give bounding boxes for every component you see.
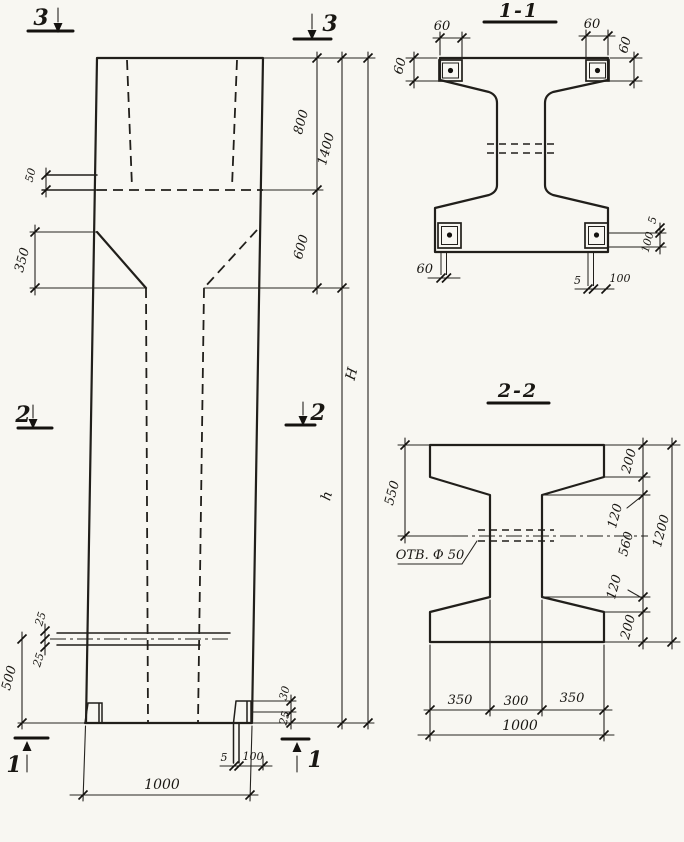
section-marker-label: 2 bbox=[309, 400, 325, 426]
dim-plate-right-thickness: 5 bbox=[645, 215, 659, 225]
extension-lines bbox=[18, 58, 375, 801]
dim-base-width: 1000 bbox=[144, 777, 180, 793]
embedded-plate-top-left bbox=[439, 60, 462, 81]
dim-plate-tl-height: 60 bbox=[391, 56, 410, 76]
section-marker-label: 1 bbox=[6, 752, 21, 778]
section-marker-3-left: 3 bbox=[28, 5, 73, 33]
dim-plate-tr-height: 60 bbox=[616, 35, 635, 55]
hidden-cap-left bbox=[127, 60, 132, 187]
hole-note: ОТВ. Ф 50 bbox=[396, 548, 465, 563]
anchor-tab bbox=[234, 723, 240, 763]
dim-haunch-top: 120 bbox=[605, 502, 626, 530]
dim-cap-lower: 600 bbox=[291, 233, 312, 261]
section-2-2-outline bbox=[430, 445, 604, 642]
dim-taper: 350 bbox=[12, 246, 33, 274]
section-2-2-extensions bbox=[398, 445, 680, 741]
hidden-web-right bbox=[198, 288, 204, 722]
dimension-ticks bbox=[18, 54, 373, 800]
dim-cap-total: 1400 bbox=[315, 131, 338, 167]
section-marker-3-right: 3 bbox=[294, 11, 338, 40]
dim-total-height: H bbox=[343, 365, 362, 383]
section-marker-1-right: 1 bbox=[282, 739, 323, 773]
section-1-1-title: 1-1 bbox=[499, 0, 539, 22]
section-1-1-dim-lines bbox=[406, 30, 666, 289]
dim-ledge: 50 bbox=[23, 167, 39, 184]
dim-total-height-22: 1200 bbox=[650, 513, 673, 549]
dim-shaft-height: h bbox=[318, 490, 336, 503]
section-2-2-view: 2-2 ОТВ. Ф 50 550 200 120 560 120 200 12… bbox=[382, 380, 680, 741]
section-marker-label: 3 bbox=[33, 5, 48, 31]
section-2-2-title: 2-2 bbox=[497, 380, 538, 402]
section-marker-label: 2 bbox=[14, 402, 30, 428]
dim-plate-right-length: 100 bbox=[639, 230, 657, 254]
dim-plate-thickness: 5 bbox=[221, 751, 228, 764]
dim-flange-bottom: 200 bbox=[618, 613, 639, 642]
section-marker-1-left: 1 bbox=[6, 738, 48, 778]
dim-bottom-left: 350 bbox=[448, 693, 473, 708]
dim-plate-length: 100 bbox=[243, 750, 264, 763]
dim-plate-tr-width: 60 bbox=[584, 17, 601, 32]
foot-right bbox=[234, 701, 252, 723]
dim-plate-bl-width: 60 bbox=[416, 262, 433, 277]
taper-edge-left bbox=[97, 232, 146, 288]
section-1-1-ticks bbox=[410, 32, 665, 294]
dim-plate-br-length: 100 bbox=[610, 272, 631, 285]
dim-plate-br-thickness: 5 bbox=[574, 274, 581, 287]
dim-flange-top: 200 bbox=[619, 447, 640, 476]
dim-plate-tl-width: 60 bbox=[434, 19, 451, 34]
column-outline bbox=[85, 58, 263, 723]
dim-hole-above: 25 bbox=[32, 610, 49, 628]
section-2-2-ticks bbox=[401, 441, 677, 740]
elevation-view: 50 350 800 1400 600 H h 25 25 500 30 25 … bbox=[0, 5, 375, 801]
dim-bottom-right: 350 bbox=[560, 691, 585, 706]
section-marker-2-right: 2 bbox=[286, 400, 326, 426]
dim-top-to-hole: 550 bbox=[382, 479, 403, 507]
dim-bottom-middle: 300 bbox=[504, 694, 529, 709]
section-marker-2-left: 2 bbox=[14, 402, 52, 429]
section-marker-label: 3 bbox=[322, 11, 337, 37]
section-1-1-view: 1-1 bbox=[391, 0, 666, 294]
dim-cap-upper: 800 bbox=[291, 108, 312, 136]
foot-left bbox=[85, 703, 102, 723]
column-ledge bbox=[42, 175, 97, 190]
dim-hole-to-base: 500 bbox=[0, 664, 20, 692]
drawing-sheet: 50 350 800 1400 600 H h 25 25 500 30 25 … bbox=[0, 0, 684, 842]
dim-web-height: 560 bbox=[616, 530, 637, 558]
section-marker-label: 1 bbox=[307, 747, 322, 773]
hidden-cap-right bbox=[232, 60, 237, 187]
embedded-plate-top-right bbox=[586, 60, 609, 81]
hidden-taper-right bbox=[204, 230, 257, 288]
dim-bottom-total: 1000 bbox=[502, 718, 538, 734]
hidden-web-left bbox=[146, 288, 148, 722]
dim-foot-upper: 30 bbox=[277, 685, 293, 702]
engineering-drawing: 50 350 800 1400 600 H h 25 25 500 30 25 … bbox=[0, 0, 684, 842]
embedded-plate-bottom-left bbox=[438, 223, 461, 275]
